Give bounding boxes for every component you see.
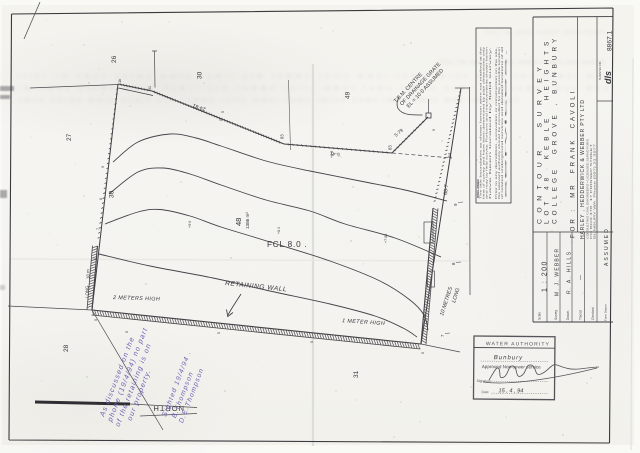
svg-text:+7·88: +7·88 <box>384 234 388 243</box>
svg-text:services.: services. <box>504 42 507 199</box>
svg-text:83: 83 <box>280 134 285 139</box>
svg-text:CONTOUR SURVEY: CONTOUR SURVEY <box>537 61 544 224</box>
svg-text:8867.1: 8867.1 <box>607 30 614 51</box>
svg-text:15 , 4 , 94: 15 , 4 , 94 <box>498 388 523 394</box>
svg-text:nmuu uutmn mmtu numlt utm lnmm: nmuu uutmn mmtu numlt utm lnmmu tnllu mm… <box>18 98 518 104</box>
svg-text:DISCLAIMER: DISCLAIMER <box>476 179 480 199</box>
svg-text:Traced: Traced <box>579 310 583 320</box>
svg-text:COLLEGE GROVE , BUNBURY: COLLEGE GROVE , BUNBURY <box>552 35 559 224</box>
svg-text:Scale: Scale <box>538 312 542 320</box>
svg-text:30: 30 <box>197 71 204 79</box>
svg-text:SURVEYED 4/94: SURVEYED 4/94 <box>599 61 602 80</box>
svg-text:PO BOX 478 17 PRINSEP STREET: PO BOX 478 17 PRINSEP STREET <box>589 143 593 239</box>
svg-text:28: 28 <box>63 344 70 352</box>
svg-text:5: 5 <box>124 330 129 333</box>
svg-text:5·79: 5·79 <box>393 128 404 139</box>
svg-text:Checked: Checked <box>591 307 595 320</box>
svg-text:+8·2: +8·2 <box>277 227 281 234</box>
svg-text:dls: dls <box>603 71 613 84</box>
svg-text:Bunbury: Bunbury <box>494 355 523 361</box>
svg-text:26: 26 <box>111 55 118 63</box>
svg-text:27: 27 <box>66 133 73 141</box>
svg-text:91: 91 <box>148 86 152 90</box>
svg-text:FCL 8.0 .: FCL 8.0 . <box>267 240 308 249</box>
svg-text:lllui tm nmuu uutmn mmtu numlt: lllui tm nmuu uutmn mmtu numlt <box>485 30 605 36</box>
svg-text:LONG: LONG <box>85 285 90 298</box>
svg-text:—: — <box>578 275 584 280</box>
svg-text:83: 83 <box>388 145 393 150</box>
svg-text:+9·0: +9·0 <box>188 221 192 228</box>
svg-text:R. A. HILLS: R. A. HILLS <box>567 250 573 294</box>
svg-text:5: 5 <box>420 351 425 354</box>
svg-text:7: 7 <box>96 228 100 230</box>
svg-text:8: 8 <box>219 119 223 121</box>
svg-text:5: 5 <box>221 111 225 113</box>
svg-text:Form Datum: Form Datum <box>604 304 608 321</box>
svg-text:9: 9 <box>101 166 105 168</box>
svg-text:RETAINING WALL: RETAINING WALL <box>225 280 287 293</box>
svg-text:5: 5 <box>216 331 221 334</box>
svg-text:Approved Non-sewer service: Approved Non-sewer service <box>482 364 541 370</box>
svg-text:ASSUMED: ASSUMED <box>604 227 610 266</box>
svg-text:2 METERS HIGH: 2 METERS HIGH <box>112 295 160 303</box>
svg-text:68·7: 68·7 <box>443 184 450 195</box>
svg-text:10 m: 10 m <box>86 269 91 279</box>
svg-text:have been located by field sur: have been located by field survey. <box>489 46 492 199</box>
svg-text:FOR : MR FRANK CAVOLI: FOR : MR FRANK CAVOLI <box>570 89 577 238</box>
svg-text:48: 48 <box>234 218 243 226</box>
svg-text:8: 8 <box>99 198 103 200</box>
svg-text:6: 6 <box>93 258 97 260</box>
svg-text:1386 m²: 1386 m² <box>245 212 250 229</box>
svg-text:30: 30 <box>109 190 116 198</box>
svg-text:1 : 200: 1 : 200 <box>542 260 549 292</box>
svg-text:1k: 1k <box>117 79 122 83</box>
svg-text:Survey: Survey <box>554 310 558 320</box>
svg-text:M. J. WEBBER: M. J. WEBBER <box>555 248 561 296</box>
svg-text:BUNBURY WA Phone (097) 21 357: BUNBURY WA Phone (097) 21 3577 <box>593 143 597 239</box>
svg-text:WATER AUTHORITY: WATER AUTHORITY <box>486 341 550 348</box>
svg-text:CONSULTING CIVIL ENGINEERS • L: CONSULTING CIVIL ENGINEERS • LICENSED SU… <box>586 139 590 239</box>
svg-text:7: 7 <box>440 334 445 337</box>
svg-text:+8·9: +8·9 <box>330 151 334 158</box>
svg-text:HARLEY , HEDDERWICK & WEBBER P: HARLEY , HEDDERWICK & WEBBER PTY LTD <box>580 99 586 239</box>
svg-text:Date: Date <box>481 390 488 394</box>
svg-text:49: 49 <box>345 91 352 99</box>
svg-text:64: 64 <box>447 152 453 158</box>
svg-text:1 METER HIGH: 1 METER HIGH <box>342 318 385 327</box>
svg-text:31: 31 <box>353 370 360 378</box>
svg-text:Drawn: Drawn <box>566 311 570 320</box>
svg-text:LOT 48 KEBLE HEIGHTS: LOT 48 KEBLE HEIGHTS <box>544 37 551 224</box>
svg-text:9: 9 <box>432 129 436 131</box>
svg-text:8: 8 <box>451 262 456 265</box>
svg-text:lllui tm nmuu uutmn mmtu numlt: lllui tm nmuu uutmn mmtu numlt utm lnmmu <box>440 60 605 66</box>
svg-text:9: 9 <box>453 203 458 206</box>
